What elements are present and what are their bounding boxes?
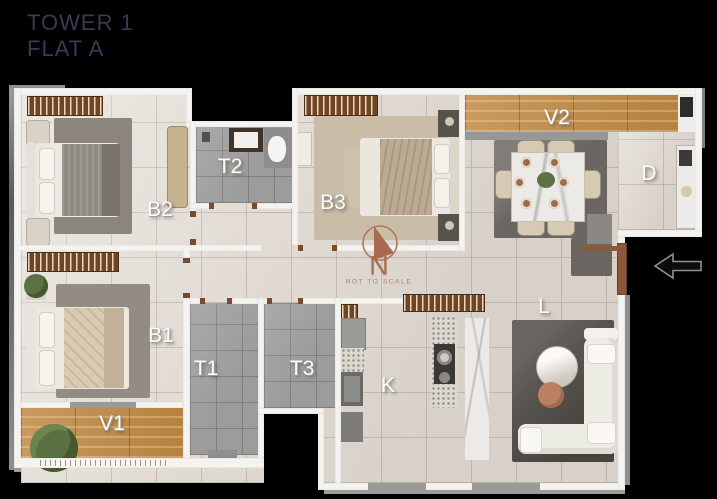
sofa-pillow-2	[587, 422, 616, 444]
plate	[514, 177, 525, 188]
slab-edge-right	[625, 295, 630, 485]
door-jamb	[332, 245, 337, 251]
sofa-pillow-1	[587, 344, 616, 364]
wall-b2-bottom	[14, 245, 262, 251]
kitchen-tall-unit	[465, 318, 489, 460]
dresser-b2	[167, 126, 188, 208]
room-label-t2: T2	[218, 155, 243, 179]
wardrobe-b3	[304, 95, 378, 116]
room-label-b3: B3	[320, 191, 346, 215]
floor-plan-page: TOWER 1 FLAT A	[0, 0, 717, 499]
bed-b1-headboard	[26, 306, 35, 390]
entry-door-open	[580, 246, 618, 251]
lamp-b3-bottom	[445, 221, 454, 230]
wall-t1-left	[183, 298, 190, 458]
blanket-b2	[62, 144, 104, 216]
bench-b3	[344, 148, 360, 208]
wall-notch-bottom-right	[318, 414, 324, 490]
plate	[558, 177, 569, 188]
door-jamb	[252, 203, 257, 209]
plate	[521, 157, 532, 168]
toilet-t2	[268, 136, 286, 162]
wall-b1-door-stub	[183, 245, 190, 258]
door-jamb	[227, 298, 232, 304]
door-jamb	[209, 203, 214, 209]
slab-edge-bottom-right	[324, 490, 625, 494]
pillow-b2-2	[39, 182, 55, 214]
door-jamb	[267, 298, 272, 304]
page-title-line1: TOWER 1	[27, 10, 134, 36]
wall-b3-right	[459, 95, 465, 251]
threshold-t1	[208, 450, 237, 458]
threshold-v2	[465, 132, 608, 140]
pillow-b1-1	[39, 312, 55, 348]
bed-b1-throw	[104, 308, 124, 388]
nightstand-b2-bottom	[26, 218, 50, 246]
plate	[521, 198, 532, 209]
wall-exterior-top	[14, 88, 702, 95]
bed-b2-throw	[102, 144, 120, 216]
blanket-b1	[64, 308, 106, 388]
room-label-d: D	[641, 162, 656, 186]
wall-notch-top-bottom	[186, 121, 298, 127]
wall-t1-top-b	[232, 298, 258, 304]
room-label-v1: V1	[99, 412, 125, 436]
building-notch-bottom	[264, 414, 318, 490]
page-title-line2: FLAT A	[27, 36, 104, 62]
kitchen-cart	[339, 412, 363, 442]
burner-small	[439, 372, 450, 383]
wall-notch-bottom-left	[258, 414, 264, 458]
wall-t3-top-b	[303, 298, 335, 304]
railing-v1	[40, 460, 168, 466]
sink-basin-t2	[234, 132, 258, 148]
door-jamb	[298, 245, 303, 251]
door-jamb	[200, 298, 205, 304]
pillow-b2-1	[39, 148, 55, 180]
slider-door-v1	[70, 402, 136, 408]
floor-veranda-v2	[465, 95, 678, 132]
utility-box	[680, 97, 693, 117]
wall-exterior-right	[618, 293, 625, 490]
building-notch-top	[192, 88, 292, 121]
cabinet-dining-bowl	[681, 186, 692, 197]
room-label-t1: T1	[194, 357, 219, 381]
coffee-table-marble	[536, 346, 578, 388]
entry-arrow-left-icon	[652, 250, 704, 282]
door-jamb	[183, 258, 190, 263]
kitchen-sink-basin	[344, 376, 360, 402]
wall-t1-t3-divider	[258, 298, 264, 408]
table-centerpiece	[537, 172, 555, 188]
kitchen-counter-left	[341, 348, 364, 372]
wall-ext-right-upper	[695, 88, 702, 237]
room-label-k: K	[381, 374, 395, 398]
wall-ext-bottom	[618, 230, 702, 237]
plant-b1	[24, 274, 48, 298]
sideboard-dining	[587, 214, 612, 244]
plate	[549, 157, 560, 168]
room-label-v2: V2	[544, 106, 570, 130]
plate	[549, 198, 560, 209]
cabinet-dining-decor	[679, 150, 692, 166]
lamp-b3-top	[445, 117, 454, 126]
wall-t1-top-a	[190, 298, 200, 304]
room-label-l: L	[538, 295, 550, 319]
wardrobe-b1	[27, 252, 119, 272]
pillow-b1-2	[39, 350, 55, 386]
bed-b2-headboard	[26, 142, 35, 218]
compass-note: NOT TO SCALE	[346, 279, 413, 286]
entry-door-leaf	[617, 243, 627, 295]
wall-b3-left	[292, 121, 298, 245]
room-label-b1: B1	[148, 324, 174, 348]
door-jamb	[190, 211, 196, 217]
blanket-b3	[380, 139, 432, 215]
room-label-t3: T3	[290, 357, 315, 381]
bed-b3-headboard	[450, 137, 459, 215]
door-jamb	[298, 298, 303, 304]
coffee-table-terracotta	[538, 382, 564, 408]
floor-toilet-t3	[264, 303, 335, 408]
kitchen-appliance	[341, 318, 366, 350]
threshold-living	[472, 483, 540, 490]
compass-north-letter: N	[369, 251, 389, 282]
pillow-b3-1	[434, 144, 450, 174]
sofa-pillow-3	[520, 427, 542, 453]
slab-edge-ext-right	[702, 88, 705, 148]
pillow-b3-2	[434, 178, 450, 208]
wall-k-top	[341, 298, 403, 304]
door-jamb	[190, 239, 196, 245]
wall-k-left	[335, 298, 341, 483]
door-jamb	[183, 293, 190, 298]
room-label-b2: B2	[147, 198, 173, 222]
wall-exterior-left	[14, 88, 21, 465]
wardrobe-b2	[27, 96, 103, 116]
shower-head-t2	[202, 132, 210, 142]
kitchen-top-cabinet	[403, 294, 485, 312]
dresser-b3	[297, 132, 312, 166]
threshold-kitchen	[368, 483, 426, 490]
burner-large	[437, 350, 452, 365]
